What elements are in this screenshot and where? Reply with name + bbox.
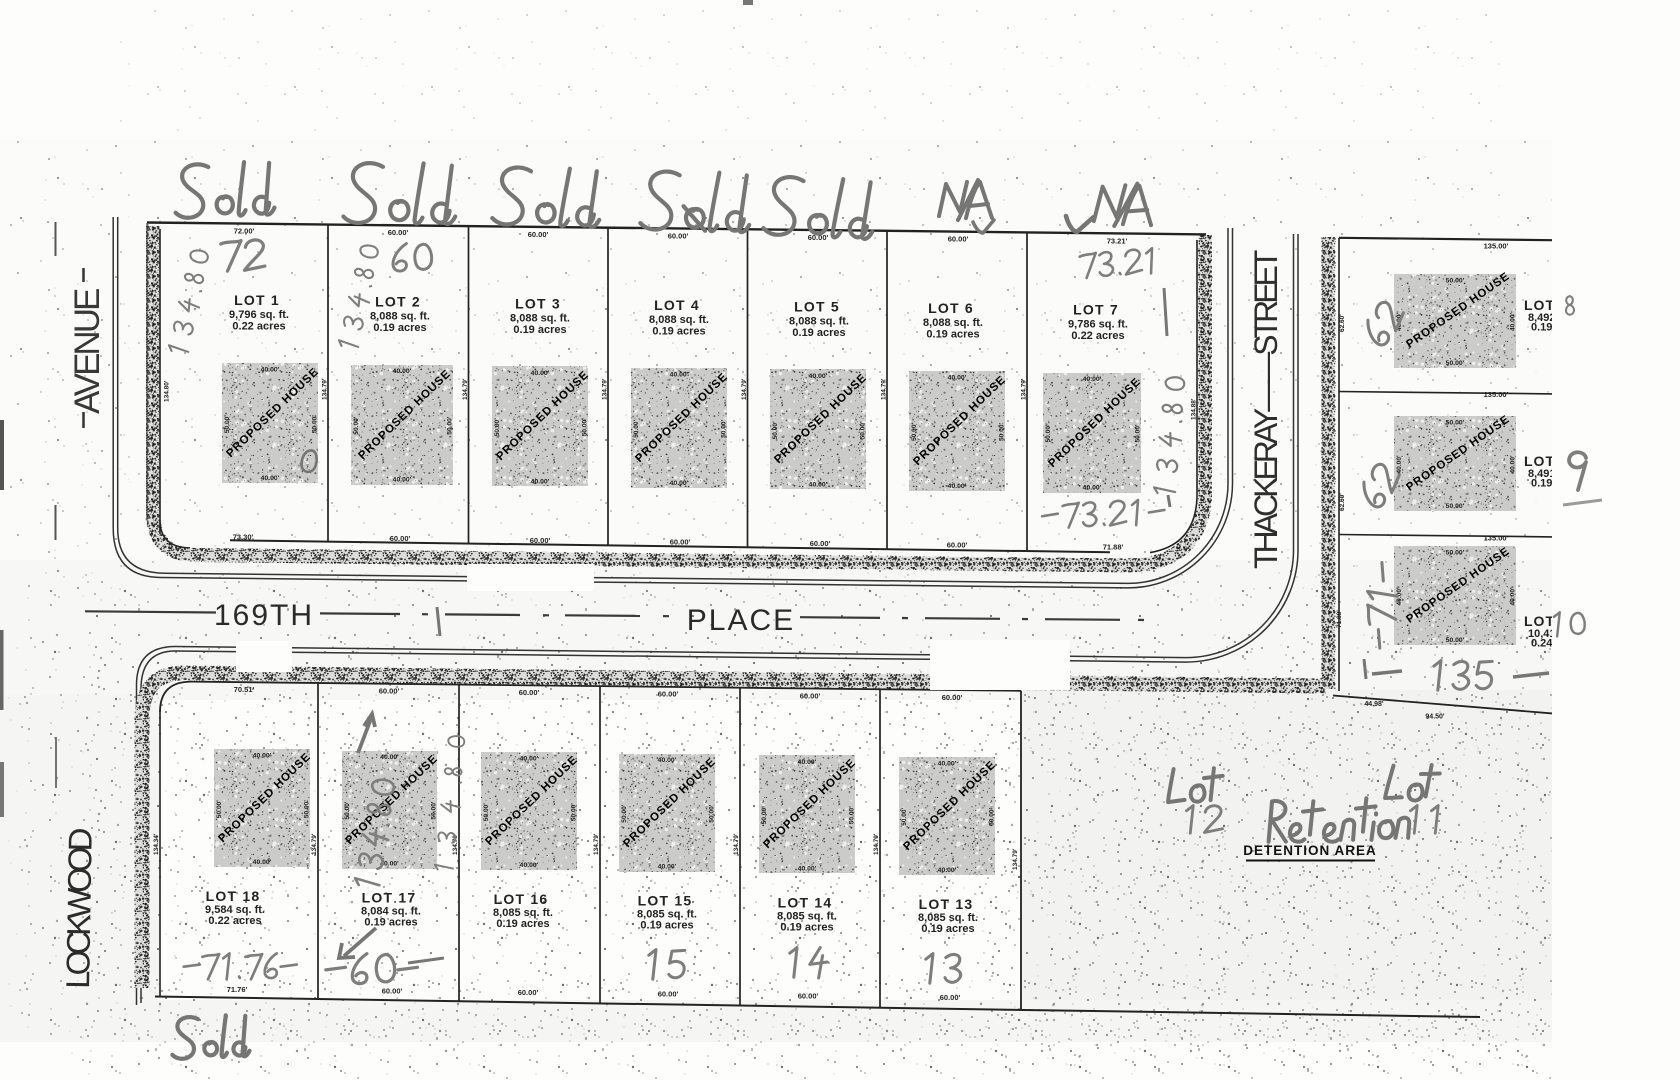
svg-text:0.19 acres: 0.19 acres xyxy=(652,325,705,337)
svg-text:50.00': 50.00' xyxy=(860,421,867,440)
svg-text:PLACE: PLACE xyxy=(687,604,795,637)
svg-text:134.79': 134.79' xyxy=(462,378,469,400)
svg-text:71.88': 71.88' xyxy=(1103,542,1124,551)
svg-text:40.00': 40.00' xyxy=(658,864,677,871)
svg-text:62.60': 62.60' xyxy=(1339,314,1346,332)
svg-text:0.22 acres: 0.22 acres xyxy=(232,321,285,333)
svg-text:50.00': 50.00' xyxy=(989,807,996,826)
svg-text:40.00': 40.00' xyxy=(670,480,689,487)
svg-text:50.00': 50.00' xyxy=(431,801,438,820)
svg-text:40.00': 40.00' xyxy=(520,862,539,869)
svg-text:0.22 acres: 0.22 acres xyxy=(208,915,261,927)
svg-text:0.19 acres: 0.19 acres xyxy=(926,328,979,340)
svg-text:60.00': 60.00' xyxy=(518,988,539,997)
svg-text:50.00': 50.00' xyxy=(344,801,351,820)
svg-text:94.50': 94.50' xyxy=(1425,714,1445,721)
svg-text:44.98': 44.98' xyxy=(1364,701,1384,708)
svg-text:0.19: 0.19 xyxy=(1531,322,1552,334)
svg-text:60.00': 60.00' xyxy=(798,991,819,1000)
svg-text:50.00': 50.00' xyxy=(304,800,311,819)
svg-text:LOT 17: LOT 17 xyxy=(362,890,417,906)
svg-text:40.00': 40.00' xyxy=(261,475,280,482)
svg-text:134.79': 134.79' xyxy=(881,378,888,400)
svg-text:DETENTION AREA: DETENTION AREA xyxy=(1243,843,1377,858)
svg-text:60.00': 60.00' xyxy=(658,990,679,999)
svg-text:135.00': 135.00' xyxy=(1484,242,1509,251)
svg-text:50.00': 50.00' xyxy=(709,804,716,823)
svg-text:0.19: 0.19 xyxy=(1531,478,1552,490)
svg-text:0.19 acres: 0.19 acres xyxy=(513,324,566,336)
svg-text:50.00': 50.00' xyxy=(494,418,501,437)
svg-text:134.79': 134.79' xyxy=(322,378,329,400)
svg-text:40.00': 40.00' xyxy=(380,754,399,761)
svg-text:LOT 13: LOT 13 xyxy=(919,896,974,912)
svg-text:50.00': 50.00' xyxy=(483,803,490,822)
svg-text:LOT 14: LOT 14 xyxy=(778,894,833,910)
svg-text:134.79': 134.79' xyxy=(873,833,880,855)
svg-text:40.00': 40.00' xyxy=(253,859,272,866)
svg-text:0.19 acres: 0.19 acres xyxy=(364,917,417,929)
svg-text:60.00': 60.00' xyxy=(942,693,963,702)
svg-text:0.19 acres: 0.19 acres xyxy=(792,327,845,339)
svg-text:62.60': 62.60' xyxy=(1339,493,1346,511)
svg-text:50.00': 50.00' xyxy=(447,416,454,435)
svg-text:50.00': 50.00' xyxy=(999,422,1006,441)
svg-text:40.00': 40.00' xyxy=(658,757,677,764)
svg-text:134.80': 134.80' xyxy=(164,380,171,402)
svg-text:135.00': 135.00' xyxy=(1484,534,1509,543)
svg-text:134.79': 134.79' xyxy=(311,833,318,855)
svg-text:40.00': 40.00' xyxy=(809,481,828,488)
svg-text:134.79': 134.79' xyxy=(593,833,600,855)
svg-text:72.00': 72.00' xyxy=(234,226,255,235)
svg-text:60.00': 60.00' xyxy=(670,537,691,546)
svg-text:LOT 1: LOT 1 xyxy=(234,292,280,308)
svg-text:71.76': 71.76' xyxy=(227,985,248,994)
svg-text:50.00': 50.00' xyxy=(849,806,856,825)
svg-text:40.00': 40.00' xyxy=(520,756,539,763)
svg-text:70.51': 70.51' xyxy=(234,685,255,694)
svg-text:40.00': 40.00' xyxy=(798,865,817,872)
svg-text:50.00': 50.00' xyxy=(224,415,231,434)
svg-text:LOT 3: LOT 3 xyxy=(515,295,561,311)
svg-text:50.00': 50.00' xyxy=(1135,424,1142,443)
svg-text:40.00': 40.00' xyxy=(1510,312,1517,331)
svg-text:LOT 15: LOT 15 xyxy=(638,893,693,909)
svg-text:9,786 sq. ft.: 9,786 sq. ft. xyxy=(1068,319,1128,331)
svg-text:134.88': 134.88' xyxy=(1191,398,1198,420)
svg-text:40.00': 40.00' xyxy=(938,867,957,874)
svg-text:50.00': 50.00' xyxy=(353,416,360,435)
svg-text:40.00': 40.00' xyxy=(798,759,817,766)
svg-text:169TH: 169TH xyxy=(214,599,314,632)
svg-text:50.00': 50.00' xyxy=(571,803,578,822)
svg-text:60.00': 60.00' xyxy=(800,691,821,700)
svg-text:THACKERAY——STREET: THACKERAY——STREET xyxy=(1248,250,1284,569)
svg-text:60.00': 60.00' xyxy=(388,228,409,237)
svg-text:LOT 4: LOT 4 xyxy=(654,297,700,313)
svg-text:40.00': 40.00' xyxy=(393,477,412,484)
svg-text:134.79': 134.79' xyxy=(1021,378,1028,400)
svg-text:50.00': 50.00' xyxy=(721,419,728,438)
svg-text:50.00': 50.00' xyxy=(582,418,589,437)
svg-text:8,088 sq. ft.: 8,088 sq. ft. xyxy=(510,312,570,324)
svg-text:73.21': 73.21' xyxy=(1107,236,1128,245)
svg-text:LOT 7: LOT 7 xyxy=(1073,302,1119,318)
svg-text:40.00': 40.00' xyxy=(1510,455,1517,474)
svg-text:0.19 acres: 0.19 acres xyxy=(496,918,549,930)
svg-text:8,088 sq. ft.: 8,088 sq. ft. xyxy=(370,311,430,323)
svg-text:60.00': 60.00' xyxy=(810,539,831,548)
svg-text:AVENUE: AVENUE xyxy=(68,289,107,414)
svg-text:40.00': 40.00' xyxy=(261,367,280,374)
svg-text:40.00': 40.00' xyxy=(1510,587,1517,606)
svg-text:0.22 acres: 0.22 acres xyxy=(1071,330,1124,342)
svg-text:50.00': 50.00' xyxy=(621,804,628,823)
svg-text:40.00': 40.00' xyxy=(393,368,412,375)
svg-text:134.79': 134.79' xyxy=(1012,848,1019,870)
svg-text:134.79': 134.79' xyxy=(741,378,748,400)
svg-text:LOT 18: LOT 18 xyxy=(206,888,261,904)
svg-text:60.00': 60.00' xyxy=(948,235,969,244)
svg-text:60.00': 60.00' xyxy=(390,534,411,543)
svg-text:50.00': 50.00' xyxy=(901,807,908,826)
svg-text:50.00': 50.00' xyxy=(761,806,768,825)
svg-text:50.00': 50.00' xyxy=(1446,278,1465,285)
svg-text:50.00': 50.00' xyxy=(1446,420,1465,427)
svg-text:60.00': 60.00' xyxy=(947,541,968,550)
svg-text:60.00': 60.00' xyxy=(382,987,403,996)
svg-text:60.00': 60.00' xyxy=(519,688,540,697)
svg-text:135.00': 135.00' xyxy=(1484,390,1509,399)
svg-text:LOT 6: LOT 6 xyxy=(928,300,974,316)
svg-text:0.24: 0.24 xyxy=(1531,638,1553,650)
svg-text:LOT 16: LOT 16 xyxy=(494,891,549,907)
svg-text:50.00': 50.00' xyxy=(772,421,779,440)
svg-text:LOT 2: LOT 2 xyxy=(375,294,421,310)
svg-text:50.00': 50.00' xyxy=(1045,424,1052,443)
svg-text:40.00': 40.00' xyxy=(670,371,689,378)
svg-text:8,088 sq. ft.: 8,088 sq. ft. xyxy=(649,314,709,326)
svg-text:40.00': 40.00' xyxy=(253,753,272,760)
svg-text:134.34': 134.34' xyxy=(153,833,160,855)
svg-text:LOT 5: LOT 5 xyxy=(794,298,840,314)
svg-text:50.00': 50.00' xyxy=(633,419,640,438)
svg-text:40.00': 40.00' xyxy=(938,760,957,767)
svg-text:0.19 acres: 0.19 acres xyxy=(373,322,426,334)
svg-text:134.79': 134.79' xyxy=(733,833,740,855)
svg-text:0.19 acres: 0.19 acres xyxy=(780,921,833,933)
svg-text:40.00': 40.00' xyxy=(948,483,967,490)
svg-text:0.19 acres: 0.19 acres xyxy=(640,920,693,932)
svg-text:50.00': 50.00' xyxy=(1446,360,1465,367)
svg-text:134.79': 134.79' xyxy=(602,378,609,400)
svg-text:50.00': 50.00' xyxy=(312,415,319,434)
svg-text:40.00': 40.00' xyxy=(1083,485,1102,492)
svg-text:60.00': 60.00' xyxy=(379,687,400,696)
svg-text:40.00': 40.00' xyxy=(531,370,550,377)
svg-text:50.00': 50.00' xyxy=(1446,550,1465,557)
svg-text:50.00': 50.00' xyxy=(216,800,223,819)
svg-text:40.00': 40.00' xyxy=(1396,455,1403,474)
svg-text:60.00': 60.00' xyxy=(528,230,549,239)
svg-text:40.00': 40.00' xyxy=(531,478,550,485)
svg-text:50.00': 50.00' xyxy=(1446,503,1465,510)
svg-text:8,088 sq. ft.: 8,088 sq. ft. xyxy=(789,315,849,327)
svg-text:LOCKWOOD: LOCKWOOD xyxy=(59,828,99,989)
svg-text:9,796 sq. ft.: 9,796 sq. ft. xyxy=(229,309,289,321)
svg-text:40.00': 40.00' xyxy=(809,373,828,380)
svg-text:40.00': 40.00' xyxy=(1083,376,1102,383)
svg-text:60.00': 60.00' xyxy=(940,993,961,1002)
svg-text:73.30': 73.30' xyxy=(233,532,254,541)
svg-text:40.00': 40.00' xyxy=(948,375,967,382)
svg-text:60.00': 60.00' xyxy=(668,231,689,240)
svg-text:0.19 acres: 0.19 acres xyxy=(921,923,974,935)
svg-text:50.00': 50.00' xyxy=(1446,637,1465,644)
svg-text:50.00': 50.00' xyxy=(911,422,918,441)
svg-text:71.88': 71.88' xyxy=(1336,610,1343,628)
svg-text:8,088 sq. ft.: 8,088 sq. ft. xyxy=(923,317,983,329)
svg-text:60.00': 60.00' xyxy=(658,690,679,699)
svg-text:60.00': 60.00' xyxy=(530,536,551,545)
